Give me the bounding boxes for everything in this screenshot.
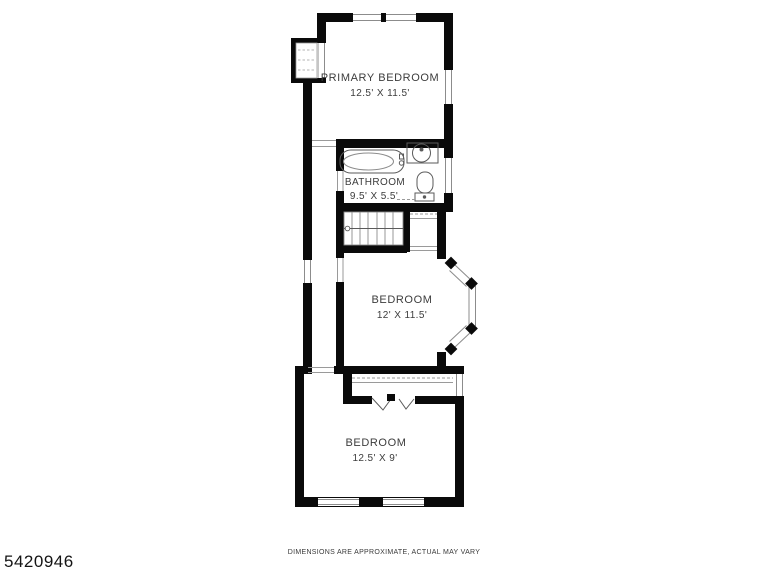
bay-window — [445, 257, 478, 356]
windows — [303, 13, 464, 506]
bedroom-rear-dims: 12.5' X 9' — [352, 453, 397, 464]
staircase — [344, 212, 403, 245]
wall-right-lower2 — [455, 396, 464, 507]
window-top — [353, 13, 416, 22]
wall-left-lower — [295, 366, 304, 507]
window-hall-left — [303, 260, 312, 283]
bathroom-dims: 9.5' X 5.5' — [350, 191, 398, 202]
wall-right-upper — [444, 13, 453, 70]
wall-right-stairs — [437, 212, 446, 259]
wall-left-outer — [303, 78, 312, 374]
room-labels: PRIMARY BEDROOM 12.5' X 11.5' BATHROOM 9… — [321, 72, 440, 464]
wall-bath-bottom — [336, 203, 445, 212]
wall-closet-top — [291, 38, 326, 43]
wall-inner-3 — [336, 282, 344, 374]
floorplan-svg: PRIMARY BEDROOM 12.5' X 11.5' BATHROOM 9… — [0, 0, 768, 576]
bedroom-middle-dims: 12' X 11.5' — [377, 310, 427, 321]
stair-newel — [345, 226, 350, 231]
bifold-door-icon — [372, 394, 414, 410]
opening-bathroom-door — [338, 171, 344, 191]
door-openings — [308, 141, 437, 373]
wall-closet-left — [291, 38, 296, 83]
stairs-closet — [410, 214, 437, 219]
wall-right-mid3 — [444, 193, 453, 212]
wall-closet2-bottom-left — [343, 396, 372, 404]
bathtub-icon — [340, 150, 404, 173]
wall-stairs-bottom — [336, 245, 407, 253]
bedroom-middle-label: BEDROOM — [371, 294, 432, 306]
window-primary-right — [444, 70, 453, 104]
bathroom-label: BATHROOM — [345, 177, 405, 188]
wall-right-mid2 — [444, 148, 453, 158]
wall-bedroom2-bottom — [334, 366, 464, 374]
opening-primary-doorway — [312, 141, 336, 147]
window-bottom-1 — [318, 498, 359, 506]
window-closet-right — [455, 374, 464, 396]
wall-alcove-divider — [343, 374, 352, 398]
bedroom-rear-label: BEDROOM — [345, 437, 406, 449]
toilet-icon — [415, 172, 434, 201]
opening-stairs-closet — [410, 247, 437, 251]
wall-right-mid1 — [444, 104, 453, 139]
primary-bedroom-dims: 12.5' X 11.5' — [350, 88, 409, 99]
opening-bedroom2-door — [338, 258, 344, 282]
window-bathroom-right — [444, 158, 453, 193]
primary-bedroom-label: PRIMARY BEDROOM — [321, 72, 440, 84]
rear-closet — [352, 378, 453, 383]
dimensions-disclaimer: DIMENSIONS ARE APPROXIMATE, ACTUAL MAY V… — [0, 549, 768, 556]
window-bottom-2 — [383, 498, 424, 506]
